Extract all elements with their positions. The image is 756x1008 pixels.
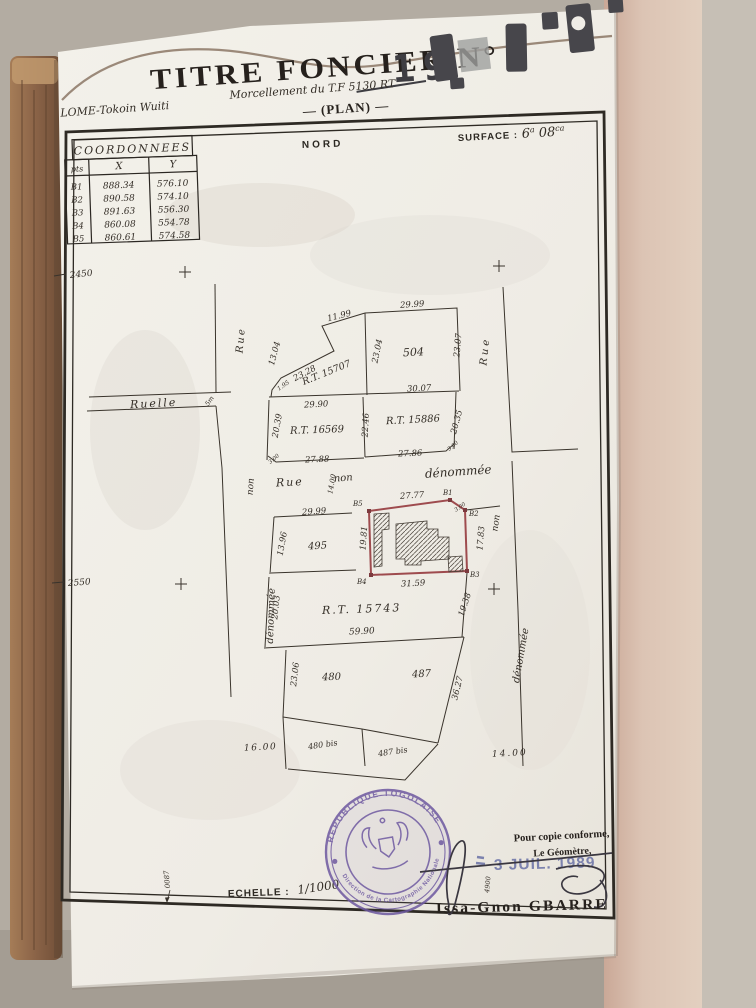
table-cell: 556.30 xyxy=(158,205,190,216)
paper-blotch xyxy=(310,215,550,295)
parcel-495: 495 xyxy=(307,540,328,552)
street-left-non: non xyxy=(246,478,257,496)
table-cell: B5 xyxy=(71,234,84,244)
point-label: B2 xyxy=(468,510,479,518)
point-label: B5 xyxy=(352,500,363,508)
north-label: NORD xyxy=(302,139,344,151)
right-wall-strip xyxy=(702,0,756,1008)
point-label: B3 xyxy=(469,571,480,579)
table-cell: 574.10 xyxy=(157,192,189,203)
measure: 17.83 xyxy=(475,526,487,551)
table-cell: 554.78 xyxy=(158,218,190,229)
measure: 27.77 xyxy=(399,490,426,502)
measure: 19.81 xyxy=(359,526,371,551)
table-cell: B3 xyxy=(71,208,84,218)
point-label: B4 xyxy=(356,578,367,586)
surface-a-unit: a xyxy=(530,125,535,134)
measure: 16.00 xyxy=(244,742,278,754)
document-scan: TITRE FONCIER N° 19 LOME-Tokoin Wuiti Mo… xyxy=(0,0,756,1008)
paper-blotch xyxy=(120,720,300,820)
street-mid-rue: Rue xyxy=(275,475,305,489)
table-cell: 576.10 xyxy=(157,179,189,190)
date-stamp: 3 JUIL. 1989 xyxy=(494,854,596,874)
margin-note: 4900 xyxy=(483,876,492,894)
measure: 27.88 xyxy=(304,455,330,466)
parcel-480: 480 xyxy=(321,672,342,684)
grid-label-0087: 0087 xyxy=(162,870,172,889)
scale-label: ECHELLE : xyxy=(228,887,290,900)
paper-blotch xyxy=(90,330,200,530)
measure: 29.99 xyxy=(301,506,328,518)
table-cell: B2 xyxy=(70,195,83,205)
table-cell: B1 xyxy=(70,182,83,192)
measure: 29.99 xyxy=(399,299,426,311)
col-header-pts: pts xyxy=(71,164,84,173)
street-ruelle: Ruelle xyxy=(129,396,178,412)
cardboard-top-cap xyxy=(12,58,58,84)
measure: 29.90 xyxy=(303,399,329,410)
measure: 59.90 xyxy=(349,626,376,637)
measure: 22.46 xyxy=(361,412,372,438)
street-rue-left: Rue xyxy=(234,327,247,355)
parcel-487: 487 xyxy=(411,668,432,680)
surface-ca: 08 xyxy=(538,125,555,141)
paper-blotch xyxy=(470,530,590,770)
table-cell: B4 xyxy=(71,221,84,231)
point-label: B1 xyxy=(442,489,453,497)
measure: 31.59 xyxy=(401,578,426,589)
surface-ca-unit: ca xyxy=(555,124,565,133)
table-cell: 891.63 xyxy=(104,207,136,218)
table-cell: 860.61 xyxy=(105,233,137,244)
parcel-rt16569: R.T. 16569 xyxy=(289,424,345,437)
grid-label-2550: 2550 xyxy=(67,577,92,589)
measure: 14.00 xyxy=(492,748,528,760)
measure: 30.07 xyxy=(407,383,432,394)
table-cell: 860.08 xyxy=(104,220,136,231)
parcel-504: 504 xyxy=(403,345,425,359)
table-cell: 890.58 xyxy=(103,194,135,205)
photographed-land-title-document: TITRE FONCIER N° 19 LOME-Tokoin Wuiti Mo… xyxy=(0,0,756,1008)
table-cell: 888.34 xyxy=(103,181,135,192)
measure: 27.86 xyxy=(397,449,423,460)
table-cell: 574.58 xyxy=(159,231,191,242)
col-header-x: X xyxy=(114,161,123,172)
